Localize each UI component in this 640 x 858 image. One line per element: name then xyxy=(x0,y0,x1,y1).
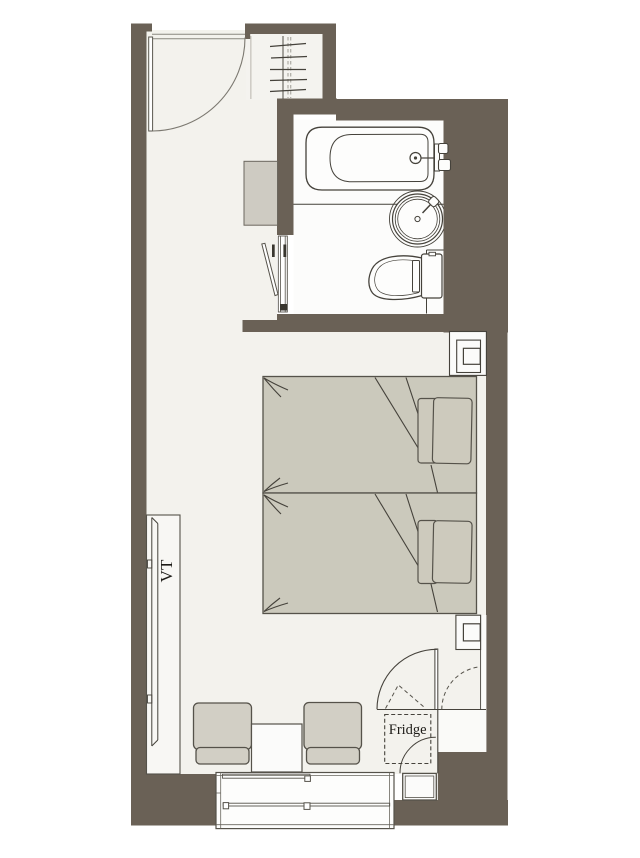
svg-text:VT: VT xyxy=(157,559,176,582)
svg-text:Fridge: Fridge xyxy=(389,722,427,738)
